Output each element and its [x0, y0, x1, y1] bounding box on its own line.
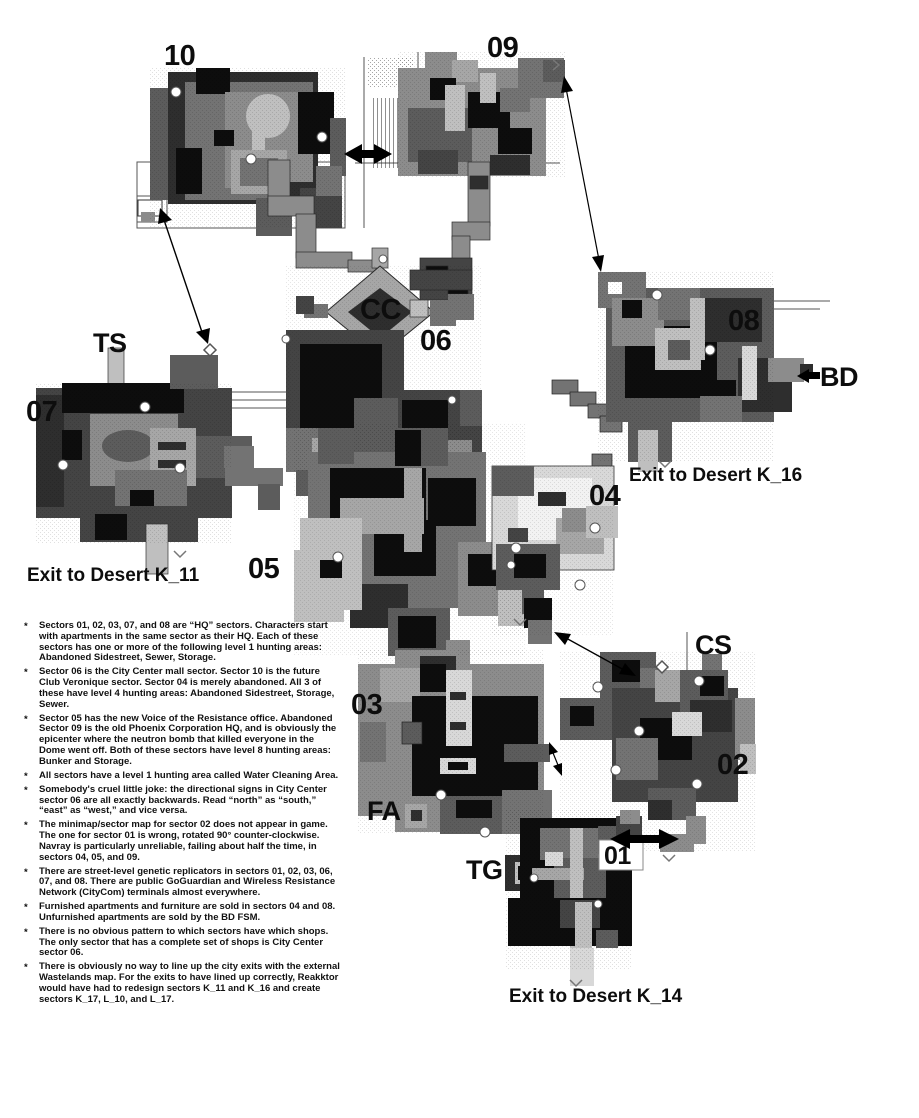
fa-label: FA [367, 798, 401, 825]
note-bullet: * [18, 902, 39, 924]
sector-08-label: 08 [728, 307, 759, 336]
note-item: * Furnished apartments and furniture are… [18, 902, 340, 924]
note-text: There is obviously no way to line up the… [39, 962, 340, 1005]
note-item: * There are street-level genetic replica… [18, 867, 340, 899]
note-bullet: * [18, 785, 39, 817]
note-text: Sector 05 has the new Voice of the Resis… [39, 714, 340, 768]
sector-01-label: 01 [604, 844, 631, 869]
note-item: * There is no obvious pattern to which s… [18, 927, 340, 959]
note-bullet: * [18, 962, 39, 1005]
note-bullet: * [18, 771, 39, 782]
note-item: * Sectors 01, 02, 03, 07, and 08 are “HQ… [18, 621, 340, 664]
note-bullet: * [18, 927, 39, 959]
sector-09-label: 09 [487, 34, 518, 63]
map-notes-panel: * Sectors 01, 02, 03, 07, and 08 are “HQ… [18, 621, 340, 1009]
exit-desert-k14-label: Exit to Desert K_14 [509, 987, 682, 1006]
note-item: * The minimap/sector map for sector 02 d… [18, 820, 340, 863]
cs-label: CS [695, 632, 732, 659]
note-text: There is no obvious pattern to which sec… [39, 927, 340, 959]
bd-label: BD [820, 364, 858, 391]
exit-desert-k11-label: Exit to Desert K_11 [27, 566, 199, 585]
city-center-label: CC [360, 296, 401, 325]
note-item: * Sector 06 is the City Center mall sect… [18, 667, 340, 710]
note-item: * There is obviously no way to line up t… [18, 962, 340, 1005]
tg-label: TG [466, 857, 503, 884]
sector-07-label: 07 [26, 398, 57, 427]
note-bullet: * [18, 867, 39, 899]
sector-04-label: 04 [589, 482, 620, 511]
sector-07-shape [36, 348, 254, 574]
note-text: Furnished apartments and furniture are s… [39, 902, 340, 924]
note-item: * Somebody's cruel little joke: the dire… [18, 785, 340, 817]
note-text: There are street-level genetic replicato… [39, 867, 340, 899]
exit-desert-k16-label: Exit to Desert K_16 [629, 466, 802, 485]
sector-02-label: 02 [717, 751, 748, 780]
city-map-page: 10 09 CC 06 TS 07 08 BD 05 04 CS 02 03 F… [0, 0, 919, 1118]
ts-label: TS [93, 330, 127, 357]
note-item: * All sectors have a level 1 hunting are… [18, 771, 340, 782]
note-text: Somebody's cruel little joke: the direct… [39, 785, 340, 817]
sector-10-label: 10 [164, 42, 195, 71]
note-text: Sectors 01, 02, 03, 07, and 08 are “HQ” … [39, 621, 340, 664]
note-text: The minimap/sector map for sector 02 doe… [39, 820, 340, 863]
note-bullet: * [18, 714, 39, 768]
note-bullet: * [18, 820, 39, 863]
sector-06-label: 06 [420, 327, 451, 356]
sector-09-shape [368, 52, 566, 178]
note-text: Sector 06 is the City Center mall sector… [39, 667, 340, 710]
note-bullet: * [18, 667, 39, 710]
note-bullet: * [18, 621, 39, 664]
sector-03-label: 03 [351, 691, 382, 720]
sector-08-shape [598, 272, 813, 472]
sector-05-label: 05 [248, 555, 279, 584]
note-text: All sectors have a level 1 hunting area … [39, 771, 340, 782]
note-item: * Sector 05 has the new Voice of the Res… [18, 714, 340, 768]
